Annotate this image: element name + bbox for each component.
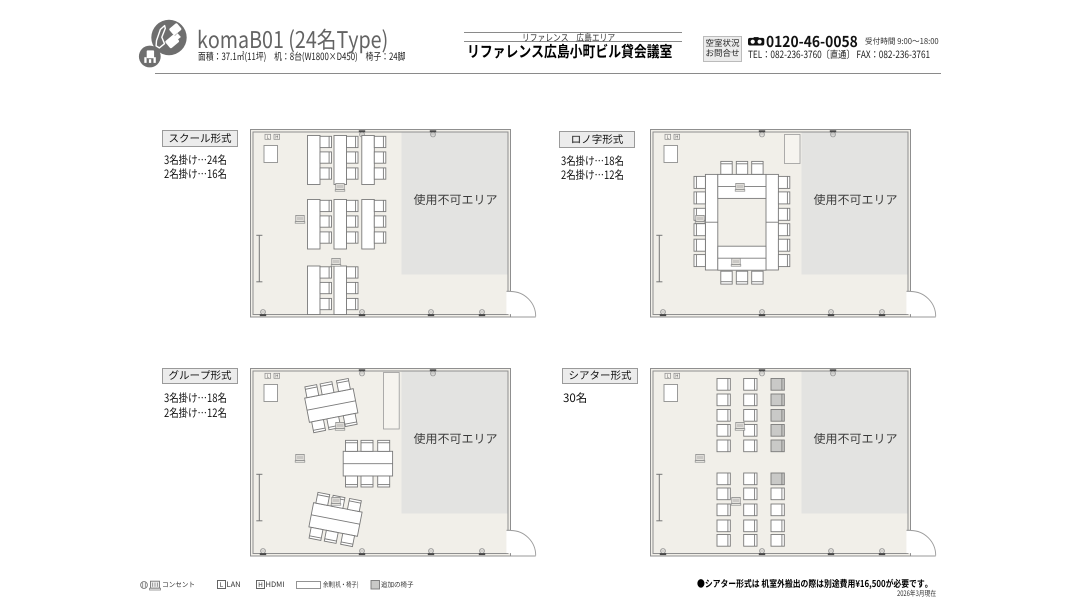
- svg-text:H: H: [258, 579, 263, 589]
- svg-text:H: H: [275, 134, 278, 140]
- svg-text:使用不可エリア: 使用不可エリア: [813, 191, 897, 208]
- svg-text:使用不可エリア: 使用不可エリア: [413, 430, 497, 447]
- svg-text:H: H: [675, 134, 678, 140]
- svg-text:L: L: [220, 579, 224, 589]
- svg-text:H: H: [275, 373, 278, 379]
- svg-text:使用不可エリア: 使用不可エリア: [813, 430, 897, 447]
- svg-text:使用不可エリア: 使用不可エリア: [413, 191, 497, 208]
- svg-text:H: H: [675, 373, 678, 379]
